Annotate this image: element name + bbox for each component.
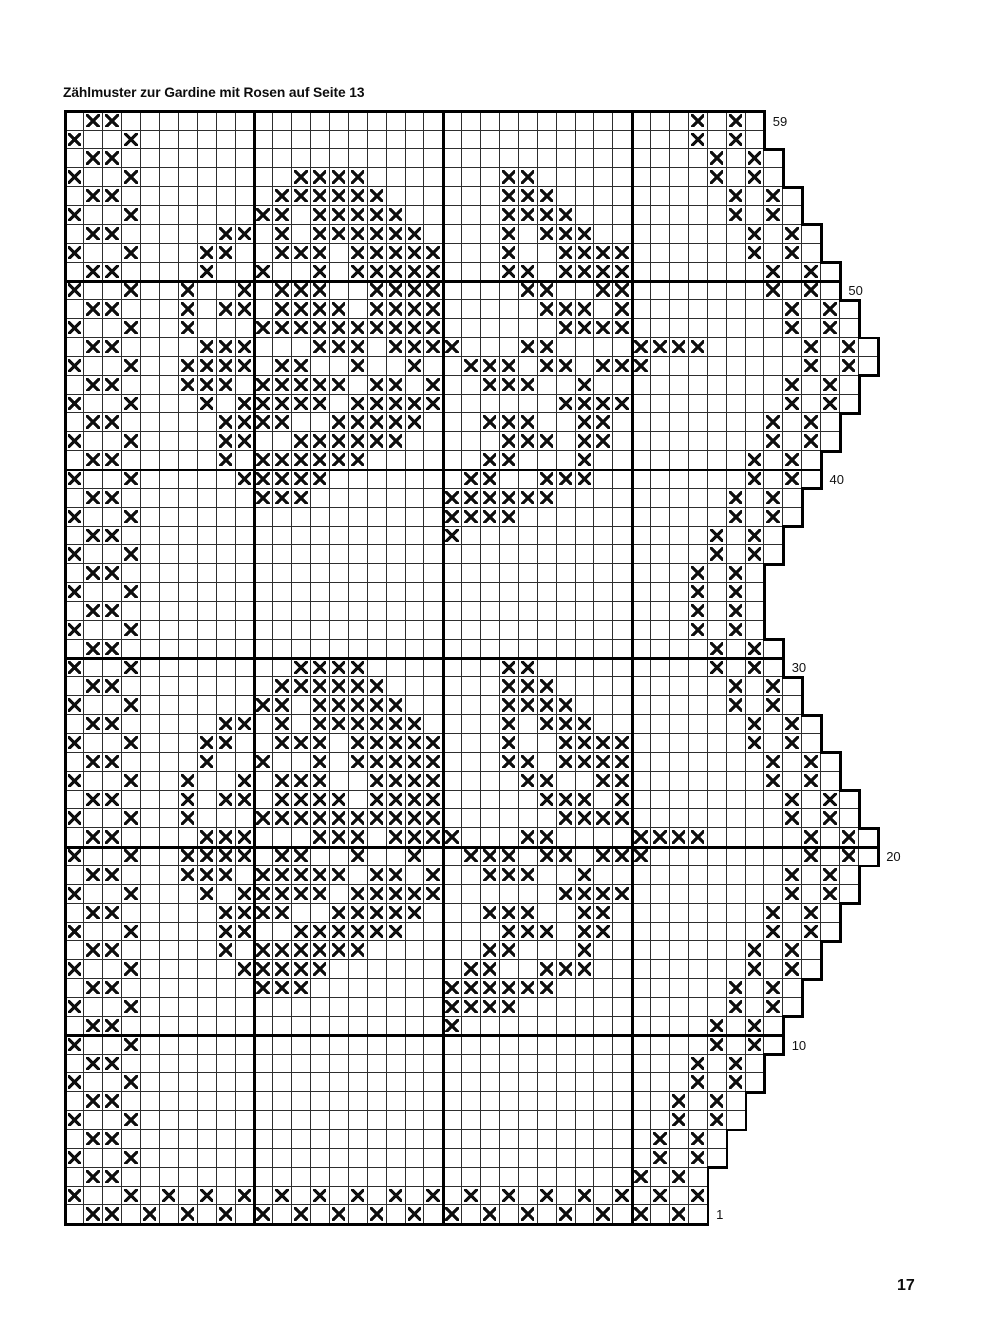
grid-cell xyxy=(236,866,255,885)
grid-cell xyxy=(594,451,613,470)
grid-cell xyxy=(519,357,538,376)
x-mark-cell xyxy=(349,885,368,904)
grid-cell xyxy=(519,395,538,414)
x-mark-cell xyxy=(821,791,840,810)
x-mark-cell xyxy=(613,772,632,791)
x-mark-cell xyxy=(557,1205,576,1224)
grid-cell xyxy=(273,1111,292,1130)
grid-cell xyxy=(538,1036,557,1055)
x-mark-cell xyxy=(103,376,122,395)
grid-cell xyxy=(424,677,443,696)
grid-cell xyxy=(368,583,387,602)
grid-cell xyxy=(689,885,708,904)
x-mark-cell xyxy=(462,508,481,527)
grid-cell xyxy=(500,809,519,828)
grid-cell xyxy=(217,1111,236,1130)
x-mark-cell xyxy=(500,206,519,225)
grid-cell xyxy=(557,1168,576,1187)
x-mark-cell xyxy=(406,395,425,414)
grid-cell xyxy=(311,847,330,866)
x-mark-cell xyxy=(311,319,330,338)
grid-cell xyxy=(424,545,443,564)
x-mark-cell xyxy=(424,281,443,300)
grid-cell xyxy=(443,413,462,432)
x-mark-cell xyxy=(500,847,519,866)
grid-cell xyxy=(462,866,481,885)
x-mark-cell xyxy=(292,923,311,942)
grid-cell xyxy=(387,1111,406,1130)
x-mark-cell xyxy=(557,809,576,828)
grid-cell xyxy=(689,527,708,546)
x-mark-cell xyxy=(481,979,500,998)
chart-row xyxy=(66,979,803,998)
x-mark-cell xyxy=(689,1073,708,1092)
grid-cell xyxy=(462,319,481,338)
grid-cell xyxy=(613,923,632,942)
x-mark-cell xyxy=(217,357,236,376)
grid-cell xyxy=(198,602,217,621)
x-mark-cell xyxy=(66,960,85,979)
x-mark-cell xyxy=(576,244,595,263)
x-mark-cell xyxy=(122,734,141,753)
grid-cell xyxy=(66,904,85,923)
grid-cell xyxy=(443,659,462,678)
grid-cell xyxy=(349,1055,368,1074)
x-mark-cell xyxy=(613,300,632,319)
grid-cell xyxy=(840,319,859,338)
grid-cell xyxy=(198,1111,217,1130)
x-mark-cell xyxy=(349,413,368,432)
x-mark-cell xyxy=(500,187,519,206)
grid-cell xyxy=(141,998,160,1017)
grid-cell xyxy=(632,753,651,772)
grid-cell xyxy=(462,904,481,923)
grid-cell xyxy=(651,904,670,923)
grid-cell xyxy=(594,1036,613,1055)
grid-cell xyxy=(670,319,689,338)
x-mark-cell xyxy=(387,866,406,885)
grid-cell xyxy=(160,677,179,696)
grid-cell xyxy=(783,432,802,451)
x-mark-cell xyxy=(179,319,198,338)
grid-cell xyxy=(349,489,368,508)
x-mark-cell xyxy=(84,1055,103,1074)
grid-cell xyxy=(254,357,273,376)
grid-cell xyxy=(708,734,727,753)
grid-cell xyxy=(160,659,179,678)
x-mark-cell xyxy=(273,979,292,998)
grid-cell xyxy=(594,1187,613,1206)
grid-cell xyxy=(292,263,311,282)
grid-cell xyxy=(160,206,179,225)
grid-cell xyxy=(160,131,179,150)
x-mark-cell xyxy=(387,376,406,395)
x-mark-cell xyxy=(179,791,198,810)
grid-cell xyxy=(103,1187,122,1206)
grid-cell xyxy=(198,1168,217,1187)
x-mark-cell xyxy=(84,904,103,923)
grid-cell xyxy=(764,149,783,168)
grid-cell xyxy=(236,941,255,960)
grid-cell xyxy=(727,828,746,847)
grid-cell xyxy=(632,413,651,432)
grid-cell xyxy=(576,979,595,998)
x-mark-cell xyxy=(519,376,538,395)
x-mark-cell xyxy=(84,1205,103,1224)
grid-cell xyxy=(519,809,538,828)
grid-cell xyxy=(727,809,746,828)
grid-cell xyxy=(481,772,500,791)
x-mark-cell xyxy=(198,357,217,376)
grid-cell xyxy=(311,508,330,527)
grid-cell xyxy=(349,1205,368,1224)
x-mark-cell xyxy=(122,960,141,979)
grid-cell xyxy=(613,131,632,150)
grid-cell xyxy=(160,1092,179,1111)
grid-cell xyxy=(708,602,727,621)
grid-cell xyxy=(594,489,613,508)
grid-cell xyxy=(311,1036,330,1055)
grid-cell xyxy=(670,602,689,621)
x-mark-cell xyxy=(330,1205,349,1224)
grid-cell xyxy=(708,432,727,451)
bold-grid-line xyxy=(745,1091,767,1094)
grid-cell xyxy=(122,866,141,885)
x-mark-cell xyxy=(576,470,595,489)
grid-cell xyxy=(122,338,141,357)
x-mark-cell xyxy=(330,206,349,225)
x-mark-cell xyxy=(103,564,122,583)
grid-cell xyxy=(311,413,330,432)
x-mark-cell xyxy=(254,376,273,395)
x-mark-cell xyxy=(236,885,255,904)
grid-cell xyxy=(424,413,443,432)
grid-cell xyxy=(708,1130,727,1149)
x-mark-cell xyxy=(840,847,859,866)
x-mark-cell xyxy=(311,960,330,979)
grid-cell xyxy=(198,696,217,715)
x-mark-cell xyxy=(66,885,85,904)
grid-cell xyxy=(840,300,859,319)
x-mark-cell xyxy=(103,979,122,998)
x-mark-cell xyxy=(708,527,727,546)
grid-cell xyxy=(670,734,689,753)
x-mark-cell xyxy=(783,885,802,904)
grid-cell xyxy=(254,1111,273,1130)
grid-cell xyxy=(651,131,670,150)
x-mark-cell xyxy=(84,715,103,734)
grid-cell xyxy=(330,149,349,168)
grid-cell xyxy=(557,904,576,923)
x-mark-cell xyxy=(330,696,349,715)
grid-cell xyxy=(292,621,311,640)
grid-cell xyxy=(708,376,727,395)
grid-cell xyxy=(349,621,368,640)
grid-cell xyxy=(292,508,311,527)
x-mark-cell xyxy=(689,112,708,131)
x-mark-cell xyxy=(613,263,632,282)
x-mark-cell xyxy=(387,432,406,451)
x-mark-cell xyxy=(764,998,783,1017)
grid-cell xyxy=(254,1036,273,1055)
grid-cell xyxy=(443,696,462,715)
grid-cell xyxy=(500,112,519,131)
x-mark-cell xyxy=(84,149,103,168)
x-mark-cell xyxy=(821,395,840,414)
grid-cell xyxy=(651,979,670,998)
grid-cell xyxy=(500,131,519,150)
grid-cell xyxy=(727,866,746,885)
bold-grid-line xyxy=(858,827,880,830)
page-number: 17 xyxy=(897,1277,915,1295)
bold-grid-line xyxy=(801,714,823,717)
x-mark-cell xyxy=(594,395,613,414)
grid-cell xyxy=(443,923,462,942)
x-mark-cell xyxy=(122,357,141,376)
grid-cell xyxy=(557,187,576,206)
grid-cell xyxy=(670,1187,689,1206)
grid-cell xyxy=(594,187,613,206)
grid-cell xyxy=(198,904,217,923)
grid-cell xyxy=(632,1187,651,1206)
grid-cell xyxy=(689,640,708,659)
grid-cell xyxy=(651,489,670,508)
grid-cell xyxy=(103,1149,122,1168)
x-mark-cell xyxy=(273,1187,292,1206)
x-mark-cell xyxy=(424,866,443,885)
grid-cell xyxy=(708,470,727,489)
grid-cell xyxy=(783,828,802,847)
grid-cell xyxy=(292,149,311,168)
grid-cell xyxy=(424,1036,443,1055)
grid-cell xyxy=(557,659,576,678)
grid-cell xyxy=(103,885,122,904)
grid-cell xyxy=(179,583,198,602)
grid-cell xyxy=(103,772,122,791)
grid-cell xyxy=(443,187,462,206)
grid-cell xyxy=(594,791,613,810)
grid-cell xyxy=(443,1130,462,1149)
grid-cell xyxy=(802,300,821,319)
grid-cell xyxy=(670,413,689,432)
x-mark-cell xyxy=(273,809,292,828)
grid-cell xyxy=(292,527,311,546)
grid-cell xyxy=(519,1149,538,1168)
x-mark-cell xyxy=(273,866,292,885)
grid-cell xyxy=(538,809,557,828)
grid-cell xyxy=(500,1055,519,1074)
grid-cell xyxy=(670,809,689,828)
grid-cell xyxy=(481,395,500,414)
x-mark-cell xyxy=(66,395,85,414)
x-mark-cell xyxy=(462,979,481,998)
grid-cell xyxy=(443,244,462,263)
grid-cell xyxy=(103,923,122,942)
grid-cell xyxy=(689,923,708,942)
grid-cell xyxy=(141,489,160,508)
grid-cell xyxy=(198,1205,217,1224)
grid-cell xyxy=(708,904,727,923)
grid-cell xyxy=(538,1017,557,1036)
x-mark-cell xyxy=(406,281,425,300)
x-mark-cell xyxy=(254,885,273,904)
chart-row xyxy=(66,357,878,376)
grid-cell xyxy=(198,923,217,942)
x-mark-cell xyxy=(103,527,122,546)
grid-cell xyxy=(122,1055,141,1074)
grid-cell xyxy=(594,640,613,659)
grid-cell xyxy=(727,451,746,470)
x-mark-cell xyxy=(368,772,387,791)
grid-cell xyxy=(764,659,783,678)
x-mark-cell xyxy=(594,847,613,866)
x-mark-cell xyxy=(236,923,255,942)
x-mark-cell xyxy=(330,904,349,923)
x-mark-cell xyxy=(689,1187,708,1206)
x-mark-cell xyxy=(481,508,500,527)
grid-cell xyxy=(349,470,368,489)
grid-cell xyxy=(594,659,613,678)
grid-cell xyxy=(481,885,500,904)
grid-cell xyxy=(387,979,406,998)
grid-cell xyxy=(349,508,368,527)
x-mark-cell xyxy=(613,734,632,753)
grid-cell xyxy=(84,432,103,451)
grid-cell xyxy=(519,508,538,527)
x-mark-cell xyxy=(519,432,538,451)
grid-cell xyxy=(651,621,670,640)
grid-cell xyxy=(613,998,632,1017)
grid-cell xyxy=(368,564,387,583)
x-mark-cell xyxy=(122,168,141,187)
x-mark-cell xyxy=(217,866,236,885)
grid-cell xyxy=(330,1036,349,1055)
grid-cell xyxy=(613,527,632,546)
grid-cell xyxy=(670,225,689,244)
x-mark-cell xyxy=(802,828,821,847)
grid-cell xyxy=(160,357,179,376)
x-mark-cell xyxy=(311,187,330,206)
x-mark-cell xyxy=(292,809,311,828)
x-mark-cell xyxy=(557,791,576,810)
x-mark-cell xyxy=(557,696,576,715)
grid-cell xyxy=(160,489,179,508)
x-mark-cell xyxy=(387,904,406,923)
grid-cell xyxy=(141,527,160,546)
grid-cell xyxy=(481,1073,500,1092)
grid-cell xyxy=(689,149,708,168)
x-mark-cell xyxy=(84,1092,103,1111)
grid-cell xyxy=(462,112,481,131)
grid-cell xyxy=(160,1055,179,1074)
grid-cell xyxy=(594,677,613,696)
grid-cell xyxy=(481,281,500,300)
grid-cell xyxy=(368,602,387,621)
x-mark-cell xyxy=(349,206,368,225)
grid-cell xyxy=(670,1073,689,1092)
grid-cell xyxy=(406,489,425,508)
grid-cell xyxy=(273,564,292,583)
grid-cell xyxy=(160,809,179,828)
grid-cell xyxy=(651,564,670,583)
grid-cell xyxy=(613,1130,632,1149)
grid-cell xyxy=(254,112,273,131)
grid-cell xyxy=(160,904,179,923)
grid-cell xyxy=(198,659,217,678)
grid-cell xyxy=(538,244,557,263)
x-mark-cell xyxy=(519,338,538,357)
grid-cell xyxy=(689,696,708,715)
x-mark-cell xyxy=(576,263,595,282)
grid-cell xyxy=(141,1130,160,1149)
grid-cell xyxy=(557,583,576,602)
grid-cell xyxy=(613,1055,632,1074)
grid-cell xyxy=(462,1168,481,1187)
grid-cell xyxy=(368,1017,387,1036)
grid-cell xyxy=(670,1130,689,1149)
x-mark-cell xyxy=(311,300,330,319)
grid-cell xyxy=(387,564,406,583)
grid-cell xyxy=(670,206,689,225)
grid-cell xyxy=(66,1205,85,1224)
chart-row xyxy=(66,696,803,715)
grid-cell xyxy=(443,206,462,225)
grid-cell xyxy=(746,677,765,696)
x-mark-cell xyxy=(349,715,368,734)
grid-cell xyxy=(330,1111,349,1130)
grid-cell xyxy=(538,941,557,960)
x-mark-cell xyxy=(481,847,500,866)
grid-cell xyxy=(613,168,632,187)
x-mark-cell xyxy=(122,1149,141,1168)
x-mark-cell xyxy=(727,1055,746,1074)
grid-cell xyxy=(311,1017,330,1036)
grid-cell xyxy=(651,168,670,187)
x-mark-cell xyxy=(594,1205,613,1224)
grid-cell xyxy=(179,734,198,753)
bold-grid-line xyxy=(64,280,842,283)
grid-cell xyxy=(424,621,443,640)
x-mark-cell xyxy=(349,263,368,282)
grid-cell xyxy=(406,979,425,998)
grid-cell xyxy=(443,1168,462,1187)
grid-cell xyxy=(406,112,425,131)
grid-cell xyxy=(746,1055,765,1074)
grid-cell xyxy=(254,281,273,300)
grid-cell xyxy=(368,131,387,150)
grid-cell xyxy=(840,885,859,904)
grid-cell xyxy=(519,1187,538,1206)
grid-cell xyxy=(651,527,670,546)
x-mark-cell xyxy=(311,696,330,715)
x-mark-cell xyxy=(311,263,330,282)
x-mark-cell xyxy=(292,791,311,810)
grid-cell xyxy=(538,602,557,621)
grid-cell xyxy=(387,1017,406,1036)
grid-cell xyxy=(783,281,802,300)
grid-cell xyxy=(443,1055,462,1074)
x-mark-cell xyxy=(103,489,122,508)
grid-cell xyxy=(538,1205,557,1224)
x-mark-cell xyxy=(783,376,802,395)
x-mark-cell xyxy=(387,715,406,734)
grid-cell xyxy=(368,1130,387,1149)
x-mark-cell xyxy=(236,1187,255,1206)
grid-cell xyxy=(254,1092,273,1111)
x-mark-cell xyxy=(84,791,103,810)
grid-cell xyxy=(632,923,651,942)
x-mark-cell xyxy=(254,941,273,960)
